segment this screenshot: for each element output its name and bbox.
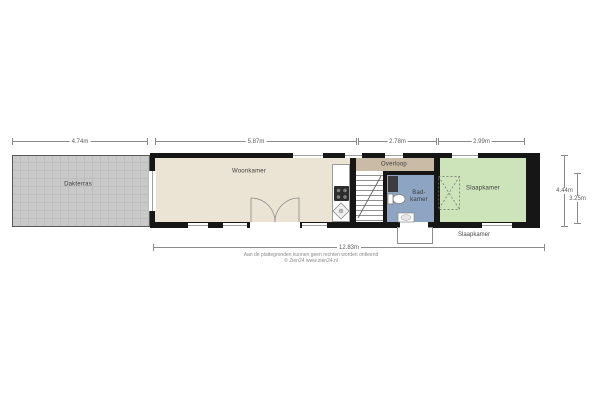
dim-label: 2.78m (387, 139, 408, 145)
stair-direction-line (358, 176, 381, 218)
stove-burner (343, 195, 347, 199)
label-dakterras: Dakterras (64, 182, 92, 189)
disclaimer-line2: © Zien24 www.zien24.nl (284, 258, 338, 264)
french-door-right-arc (275, 198, 299, 222)
dim-total-width: 12.83m (153, 244, 545, 251)
toilet-bowl (393, 194, 405, 203)
label-badkamer: Bad-kamer (408, 190, 430, 204)
dim-label: 4.44m (554, 188, 575, 194)
kitchen-sink-drain (339, 209, 343, 213)
plan-details (0, 0, 600, 400)
label-woonkamer: Woonkamer (232, 169, 266, 176)
dim-label: 4.74m (70, 139, 91, 145)
stove-icon (334, 186, 349, 201)
floorplan-canvas: Dakterras Woonkamer Overloop Bad-kamer S… (0, 0, 600, 400)
dim-dakterras-width: 4.74m (12, 138, 148, 145)
dim-depth-outer: 4.44m (561, 155, 568, 227)
toilet-icon (388, 194, 393, 204)
dim-label: 5.87m (246, 139, 267, 145)
stove-burner (336, 188, 340, 192)
dim-label: 12.83m (337, 245, 361, 251)
french-door-left-arc (251, 198, 275, 222)
dim-depth-inner: 3.25m (574, 173, 581, 224)
dim-label: 3.25m (567, 196, 588, 202)
dim-slaapkamer-width: 2.99m (438, 138, 525, 145)
floor-caption: Slaapkamer (458, 232, 490, 238)
label-overloop: Overloop (381, 162, 407, 169)
stove-burner (343, 188, 347, 192)
label-slaapkamer: Slaapkamer (466, 186, 500, 193)
dim-woonkamer-width: 5.87m (155, 138, 357, 145)
bathroom-sink-basin (401, 215, 411, 221)
stove-burner (336, 195, 340, 199)
dim-label: 2.99m (471, 139, 492, 145)
dim-overloop-width: 2.78m (358, 138, 437, 145)
